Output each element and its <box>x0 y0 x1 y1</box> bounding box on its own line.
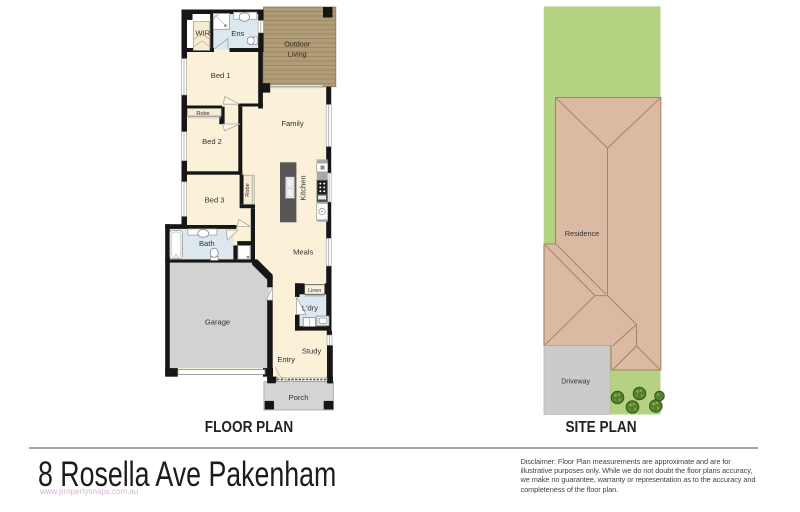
svg-text:Driveway: Driveway <box>561 378 590 385</box>
svg-text:Residence: Residence <box>565 229 599 238</box>
